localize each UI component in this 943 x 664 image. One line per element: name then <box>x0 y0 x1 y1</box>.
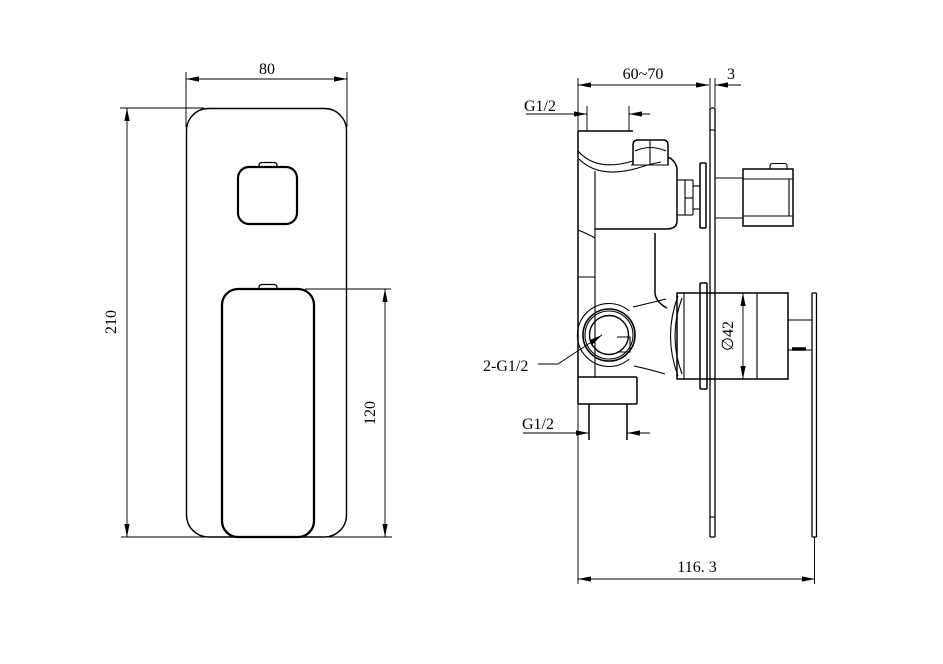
top-hex-nut <box>631 140 669 165</box>
dim-plate-thickness: 3 <box>715 66 741 85</box>
dim-overall-depth-label: 116. 3 <box>677 559 716 576</box>
diverter-handle-knob <box>743 164 793 227</box>
front-extension-lines <box>120 72 392 537</box>
side-view: 60~70 3 G1/2 2-G1/2 ∅42 G1/2 116. 3 <box>483 66 817 584</box>
dim-install-depth-label: 60~70 <box>623 66 664 83</box>
diverter-button <box>238 163 297 225</box>
dim-install-depth: 60~70 <box>578 66 709 85</box>
bottom-outlet-port <box>578 377 637 440</box>
side-inlet-port <box>577 304 635 367</box>
technical-drawing-canvas: 80 210 120 <box>0 0 943 664</box>
dim-handle-height-label: 120 <box>362 401 379 425</box>
dim-plate-width-label: 80 <box>259 61 275 78</box>
dim-bottom-outlet-thread-label: G1/2 <box>522 416 554 433</box>
mixer-cartridge <box>671 283 813 389</box>
dim-inlet-threads-label: 2-G1/2 <box>483 358 528 375</box>
dim-bottom-outlet-thread: G1/2 <box>522 416 650 433</box>
control-handle <box>222 285 314 538</box>
dim-plate-thickness-label: 3 <box>727 66 735 83</box>
diverter-knob-cap <box>770 164 787 170</box>
side-extension-lines <box>578 78 815 584</box>
dim-overall-depth: 116. 3 <box>578 559 815 579</box>
trim-cover-plate <box>812 293 817 537</box>
dim-top-outlet-thread-label: G1/2 <box>524 98 556 115</box>
technical-drawing-page: 80 210 120 <box>0 0 943 664</box>
dim-trim-diameter-label: ∅42 <box>720 321 737 351</box>
front-view: 80 210 120 <box>103 61 392 537</box>
dim-trim-diameter: ∅42 <box>720 293 743 379</box>
valve-body <box>577 131 677 440</box>
front-plate-outline <box>187 109 347 538</box>
dim-plate-height: 210 <box>103 108 127 537</box>
wall-plate-side <box>710 108 715 537</box>
dim-plate-height-label: 210 <box>103 310 120 334</box>
dim-handle-height: 120 <box>362 289 385 537</box>
dim-plate-width: 80 <box>186 61 347 79</box>
